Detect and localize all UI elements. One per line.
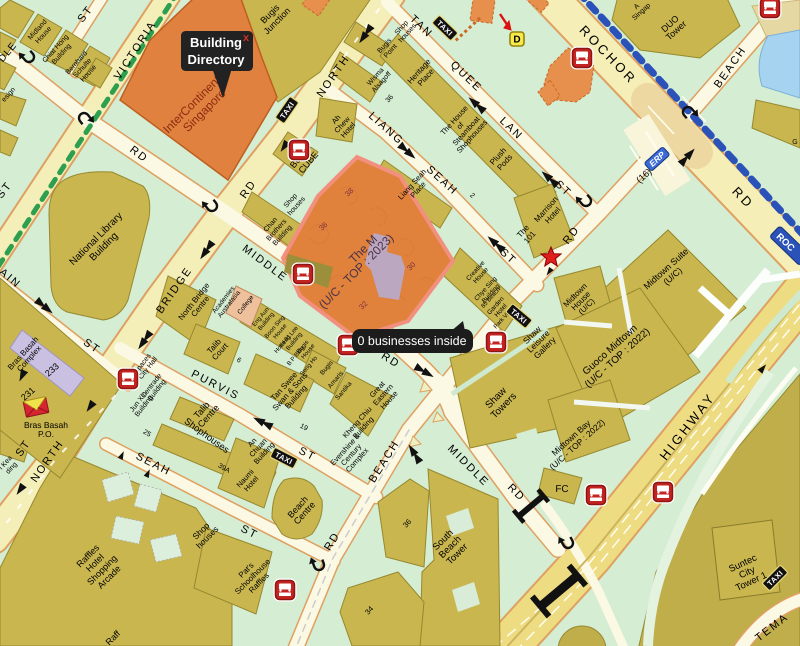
svg-text:D: D <box>513 35 520 46</box>
svg-text:Building: Building <box>190 35 242 50</box>
svg-text:FC: FC <box>555 484 568 495</box>
svg-text:x: x <box>243 32 250 44</box>
svg-text:0 businesses inside: 0 businesses inside <box>357 334 466 348</box>
svg-text:Directory: Directory <box>187 52 245 67</box>
svg-text:G: G <box>792 139 797 146</box>
